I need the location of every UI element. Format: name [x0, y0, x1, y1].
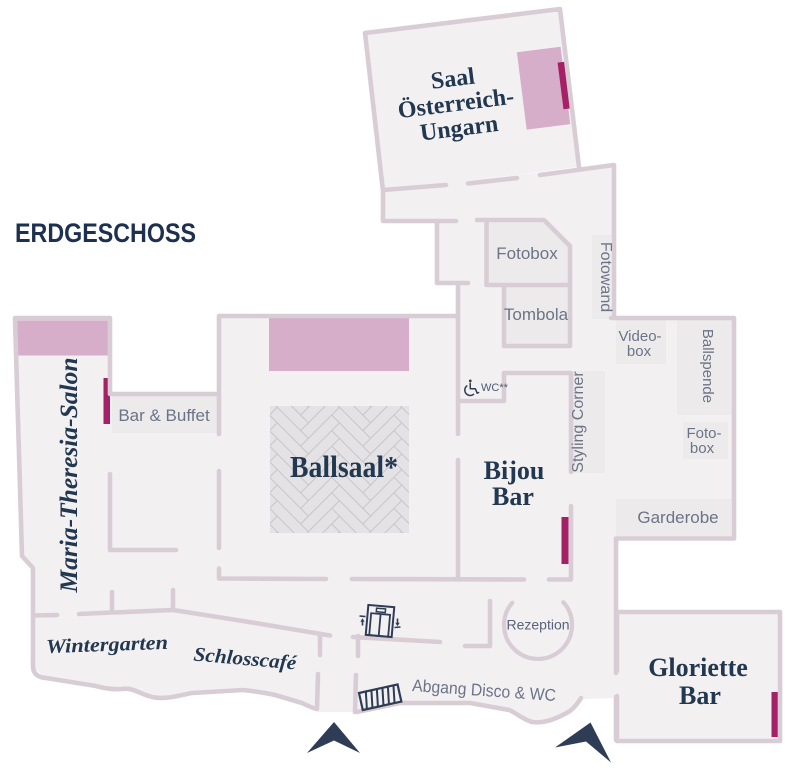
svg-text:Gloriette: Gloriette: [648, 653, 748, 682]
svg-text:box: box: [690, 440, 715, 457]
svg-text:Bar: Bar: [492, 482, 534, 511]
svg-text:Fotobox: Fotobox: [496, 244, 558, 263]
svg-text:WC**: WC**: [481, 382, 509, 394]
svg-text:Maria-Theresia-Salon: Maria-Theresia-Salon: [56, 358, 83, 594]
svg-text:Garderobe: Garderobe: [637, 508, 718, 527]
svg-text:Tombola: Tombola: [504, 305, 569, 324]
svg-text:Rezeption: Rezeption: [506, 617, 569, 633]
svg-text:Ballspende: Ballspende: [699, 329, 716, 403]
svg-text:box: box: [627, 343, 652, 360]
svg-text:Styling Corner: Styling Corner: [570, 371, 587, 473]
svg-text:Fotowand: Fotowand: [597, 242, 614, 312]
svg-text:Bijou: Bijou: [484, 456, 545, 485]
svg-text:Wintergarten: Wintergarten: [46, 632, 169, 658]
svg-text:Bar: Bar: [679, 681, 721, 710]
svg-text:ERDGESCHOSS: ERDGESCHOSS: [15, 218, 196, 248]
svg-text:Bar & Buffet: Bar & Buffet: [118, 406, 210, 425]
svg-text:Ballsaal*: Ballsaal*: [290, 449, 398, 484]
